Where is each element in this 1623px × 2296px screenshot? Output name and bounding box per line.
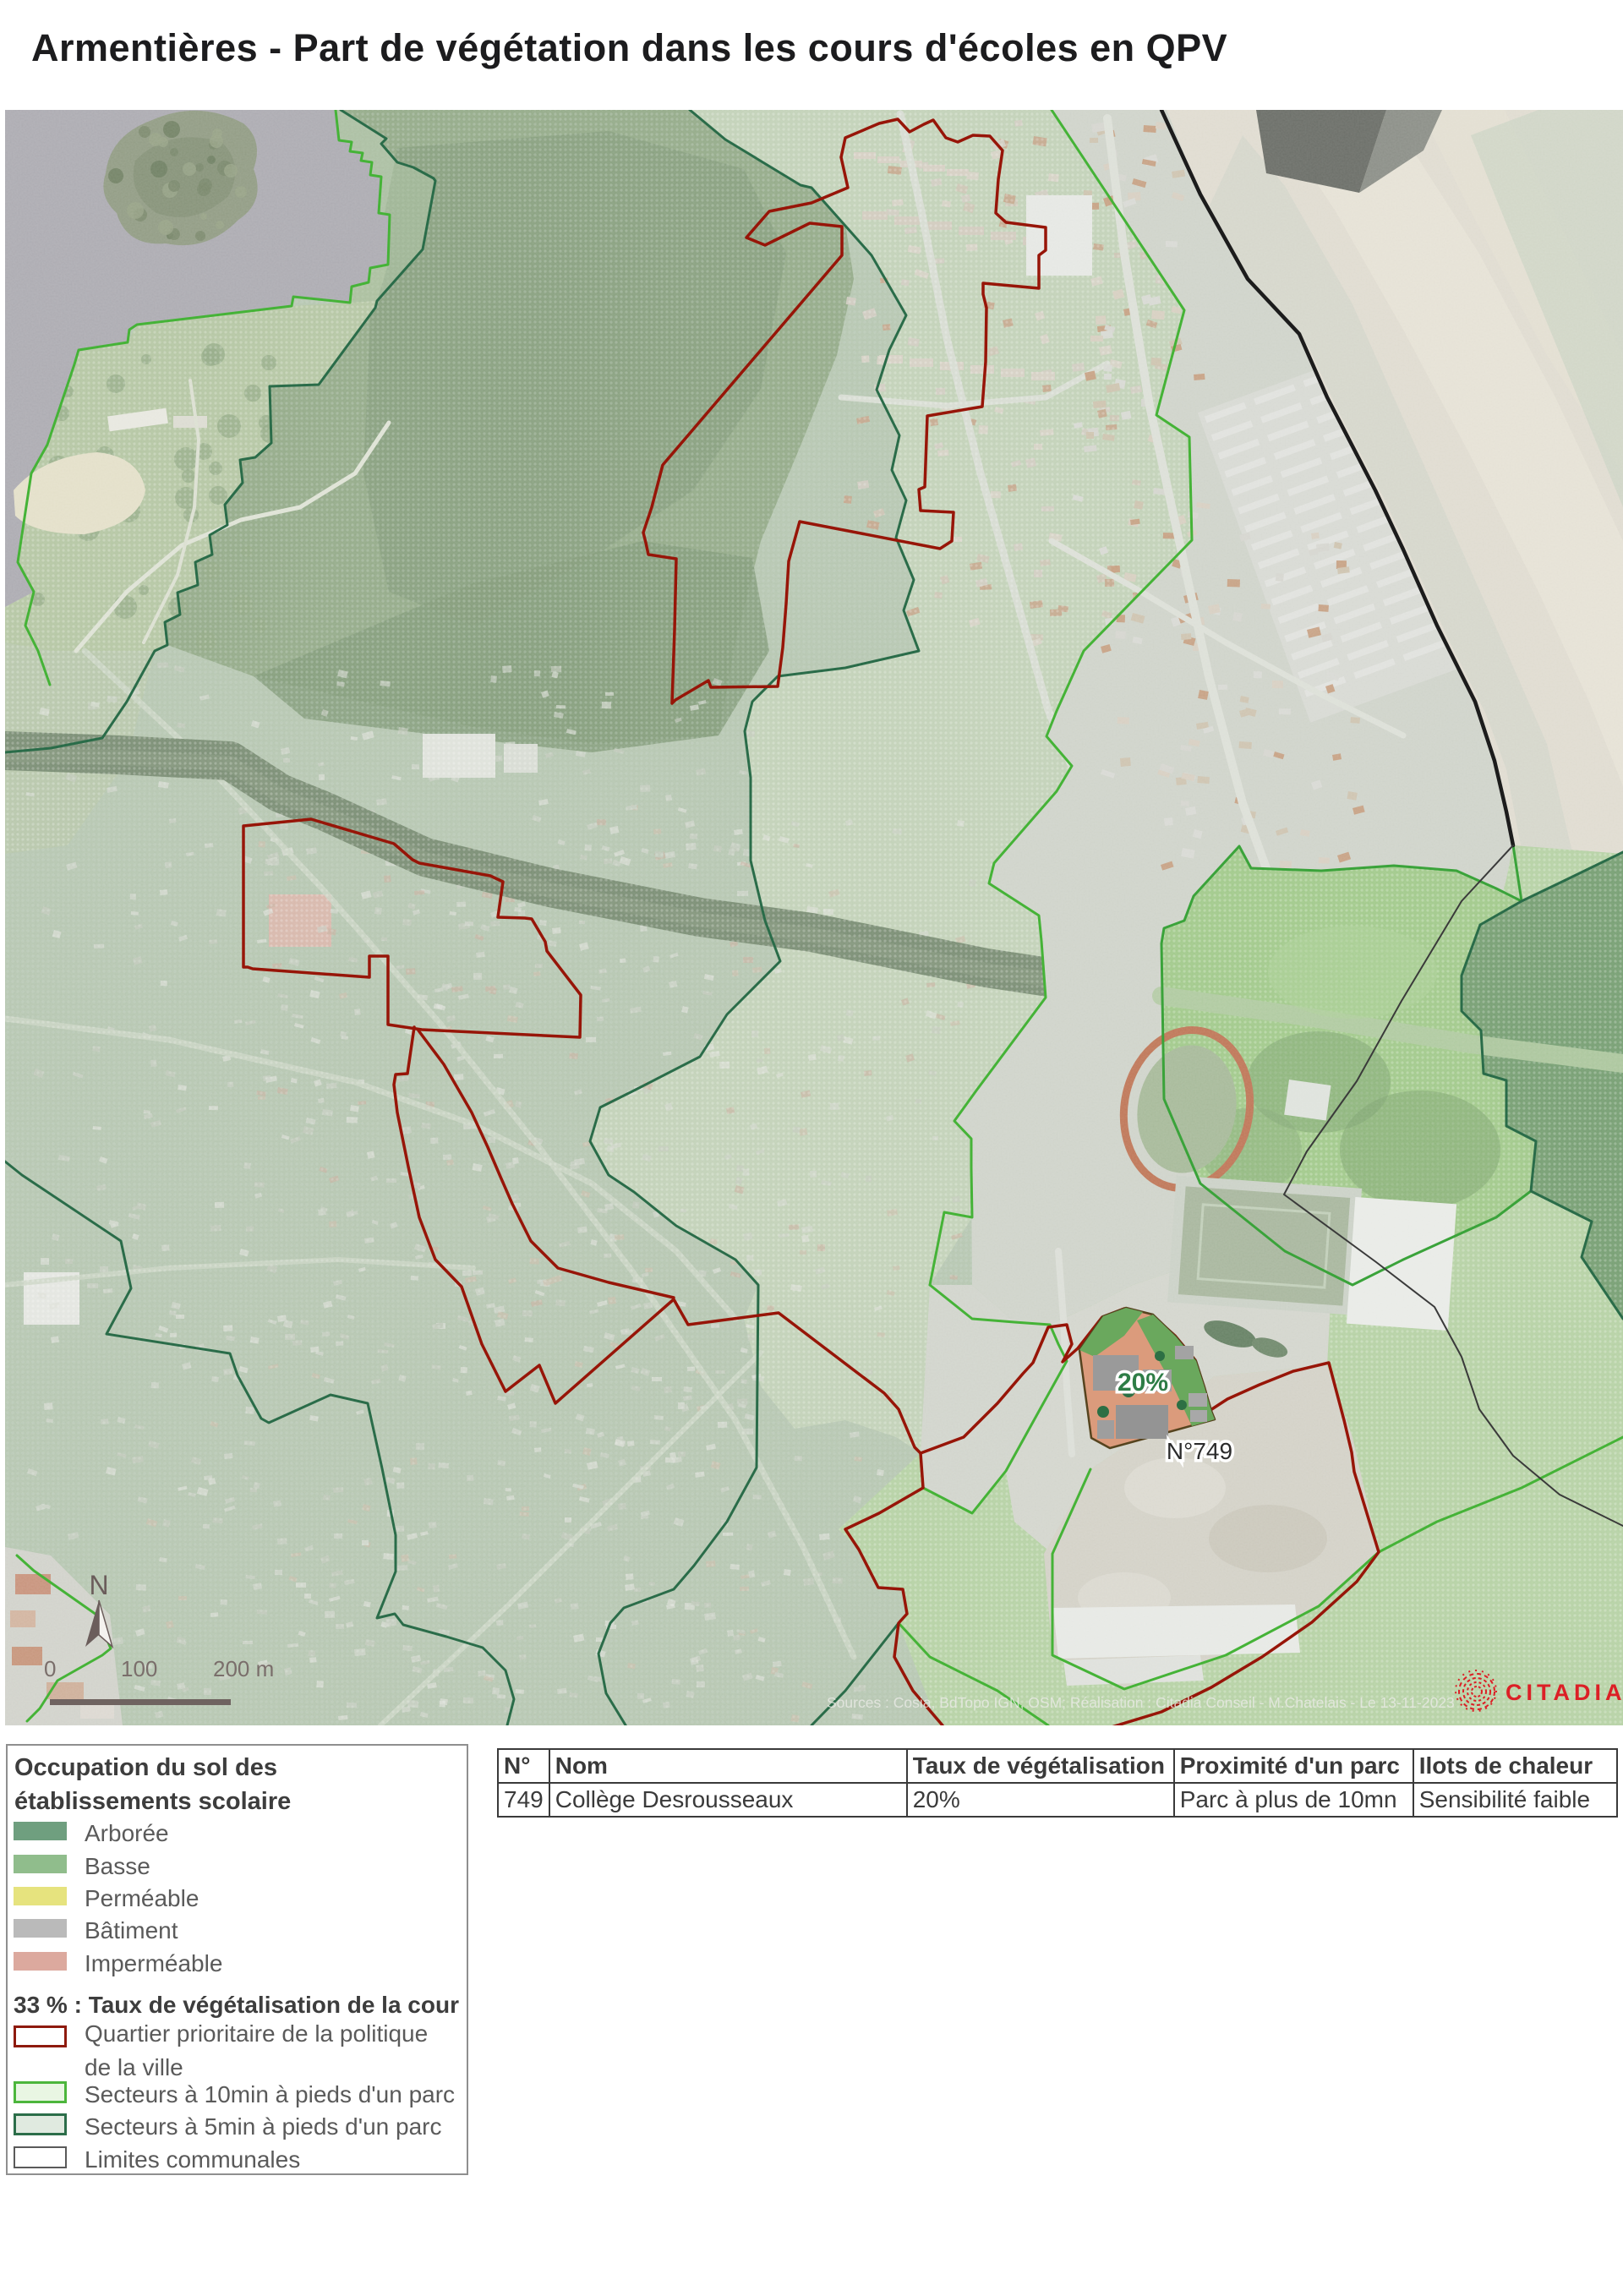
svg-text:20%: 20%	[1118, 1369, 1168, 1397]
svg-text:Sources : Cosia, BdTopo IGN, O: Sources : Cosia, BdTopo IGN, OSM; Réalis…	[827, 1694, 1455, 1711]
svg-text:N°749: N°749	[1167, 1438, 1232, 1464]
svg-text:N: N	[89, 1570, 108, 1600]
svg-text:100: 100	[121, 1656, 157, 1681]
svg-text:200 m: 200 m	[213, 1656, 274, 1681]
svg-text:0: 0	[44, 1656, 56, 1681]
svg-text:CITADIA: CITADIA	[1506, 1680, 1623, 1705]
